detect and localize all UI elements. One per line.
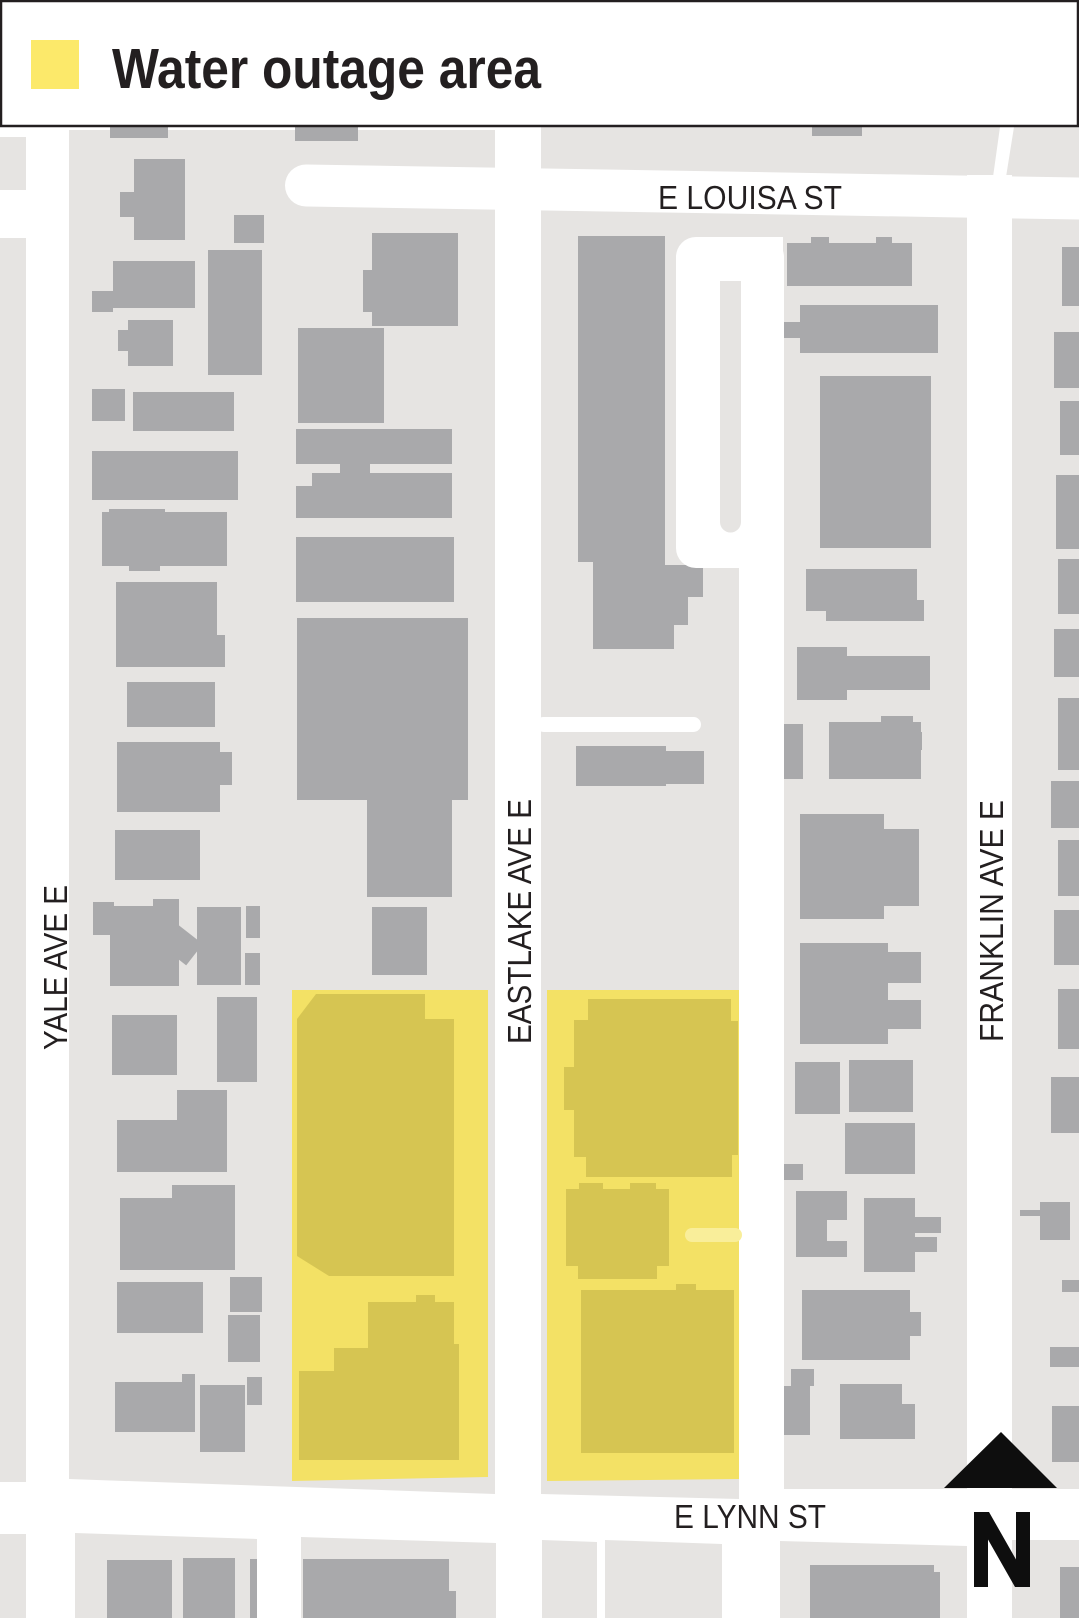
svg-text:Water outage area: Water outage area — [112, 37, 542, 101]
svg-text:EASTLAKE AVE E: EASTLAKE AVE E — [501, 799, 538, 1044]
svg-text:FRANKLIN AVE E: FRANKLIN AVE E — [973, 800, 1010, 1042]
svg-text:E LYNN ST: E LYNN ST — [674, 1498, 826, 1535]
svg-text:E LOUISA ST: E LOUISA ST — [658, 179, 842, 216]
svg-text:YALE AVE E: YALE AVE E — [37, 885, 74, 1050]
